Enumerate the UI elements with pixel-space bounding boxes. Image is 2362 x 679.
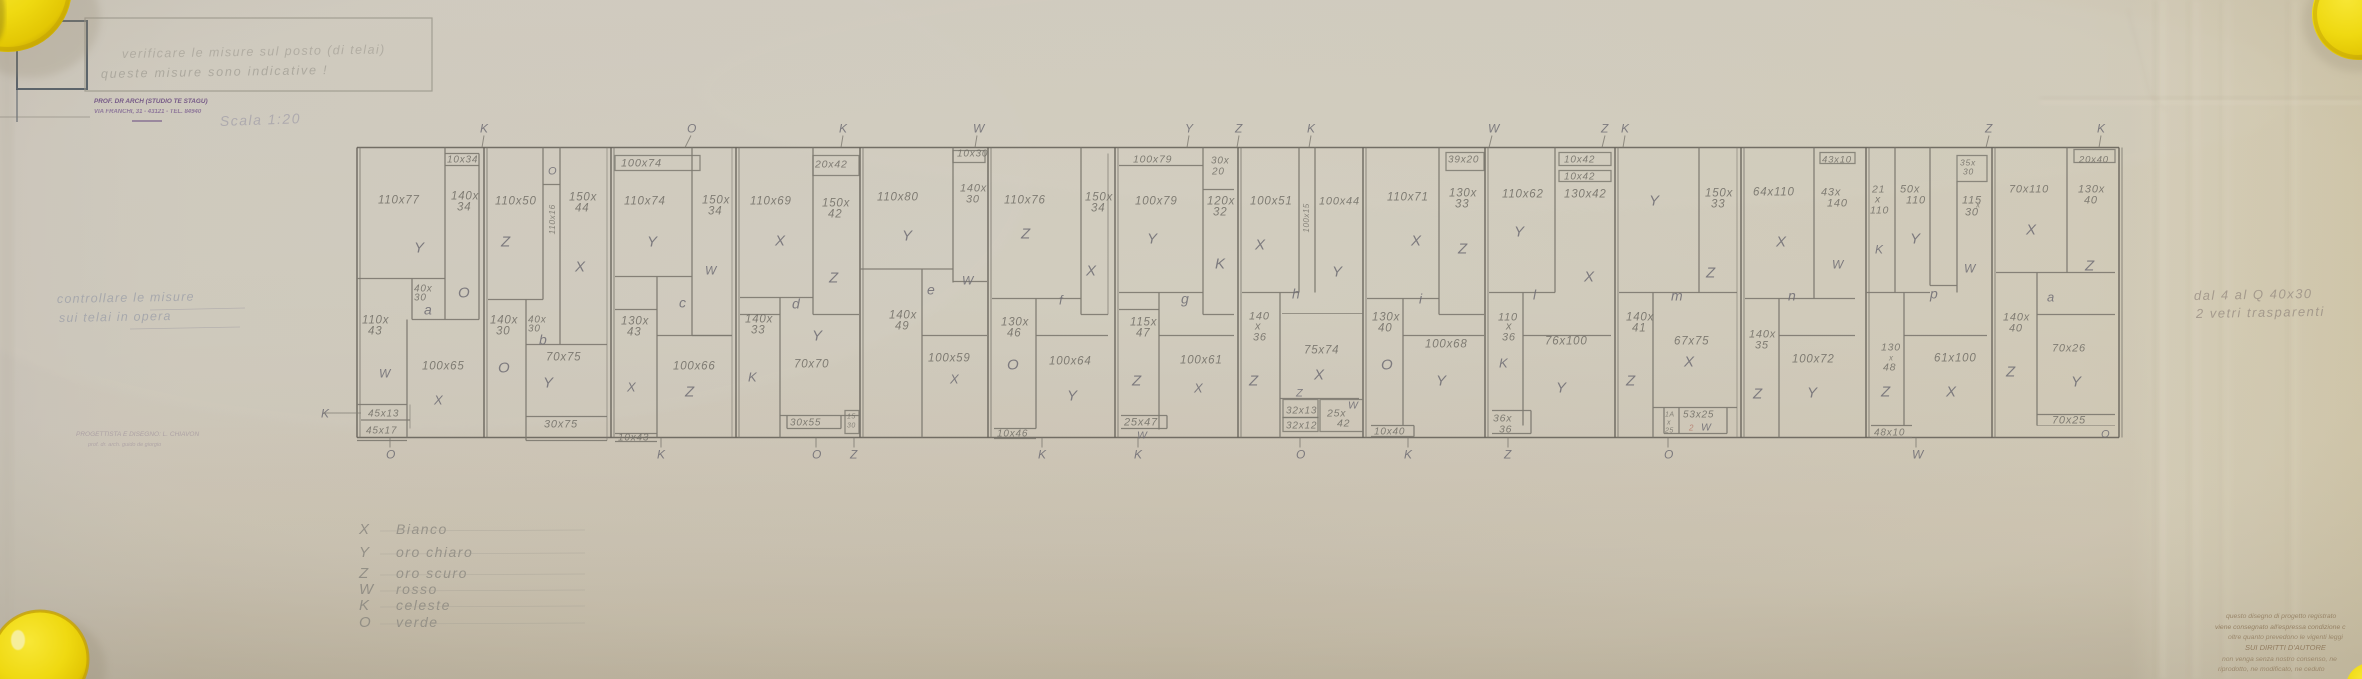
svg-text:K: K [657,448,666,462]
svg-text:W: W [705,264,718,278]
svg-text:O: O [812,448,822,462]
svg-text:O: O [458,285,470,302]
svg-text:70x75: 70x75 [546,352,581,364]
svg-text:Z: Z [1705,265,1716,282]
svg-text:34: 34 [457,202,471,214]
svg-text:p: p [1929,286,1938,302]
svg-text:Y: Y [1556,380,1567,397]
svg-text:X: X [2025,222,2037,239]
svg-text:32x12: 32x12 [1286,421,1317,432]
svg-text:K: K [1875,243,1884,257]
svg-text:Y: Y [1067,388,1078,405]
svg-text:Z: Z [1457,241,1468,258]
svg-text:46: 46 [1007,328,1021,340]
svg-text:Z: Z [2005,364,2016,381]
svg-text:Y: Y [1649,193,1660,210]
svg-text:oltre quanto prevedono le vige: oltre quanto prevedono le vigenti leggi [2228,634,2343,641]
svg-text:100x79: 100x79 [1133,154,1172,166]
svg-text:Y: Y [902,228,913,245]
svg-text:130x42: 130x42 [1564,189,1607,201]
svg-text:rosso: rosso [396,581,438,597]
svg-text:40: 40 [1378,323,1392,335]
svg-text:W: W [1137,430,1148,442]
svg-text:Y: Y [647,234,658,251]
svg-text:39x20: 39x20 [1448,155,1479,166]
svg-text:47: 47 [1136,328,1150,340]
svg-text:34: 34 [708,206,722,218]
svg-text:Y: Y [1514,224,1525,241]
svg-text:X: X [1945,384,1957,401]
svg-text:K: K [748,370,758,385]
svg-text:O: O [548,166,557,178]
svg-text:riprodotto, ne modificato, ne: riprodotto, ne modificato, ne ceduto [2218,666,2325,673]
svg-text:W: W [379,367,392,381]
svg-text:Y: Y [2071,374,2082,391]
svg-text:Z: Z [1020,226,1031,243]
svg-text:20x40: 20x40 [2078,155,2109,166]
svg-text:X: X [1583,269,1595,286]
svg-text:10x34: 10x34 [447,155,478,166]
svg-text:Z: Z [1295,388,1304,400]
svg-text:32: 32 [1213,207,1227,219]
svg-text:100x66: 100x66 [673,361,716,373]
svg-text:Scala 1:20: Scala 1:20 [220,110,302,129]
svg-text:45x17: 45x17 [366,426,397,437]
svg-text:10x42: 10x42 [1564,155,1595,166]
svg-text:53x25: 53x25 [1683,410,1714,421]
svg-text:100x74: 100x74 [621,158,662,170]
svg-text:Z: Z [500,234,511,251]
svg-text:oro scuro: oro scuro [396,565,468,581]
svg-text:Z: Z [684,384,695,401]
svg-text:43x10: 43x10 [1822,155,1852,166]
svg-text:Z: Z [1503,448,1512,462]
svg-text:30: 30 [847,423,856,430]
svg-text:25: 25 [1664,428,1674,435]
svg-text:110x77: 110x77 [378,195,420,207]
svg-text:49: 49 [895,321,909,333]
svg-text:40: 40 [2009,323,2023,335]
svg-text:W: W [973,122,986,136]
svg-text:Z: Z [1984,122,1993,136]
svg-text:70x110: 70x110 [2009,184,2049,196]
svg-text:K: K [1134,448,1143,462]
svg-text:b: b [539,332,547,348]
svg-text:100x64: 100x64 [1049,356,1092,368]
svg-text:PROGETTISTA E DISEGNO: L. CHIA: PROGETTISTA E DISEGNO: L. CHIAVON [76,431,199,438]
svg-text:30: 30 [966,194,980,206]
svg-text:110x69: 110x69 [750,196,792,208]
svg-text:e: e [927,282,935,298]
svg-text:X: X [358,521,370,538]
svg-text:110x50: 110x50 [495,196,537,208]
svg-text:1A: 1A [1665,412,1675,419]
svg-text:non venga senza nostro consens: non venga senza nostro consenso, ne [2222,656,2337,663]
svg-text:Z: Z [1880,384,1891,401]
svg-text:140: 140 [1827,198,1848,210]
svg-text:a: a [424,302,432,318]
svg-text:43: 43 [627,327,641,339]
svg-text:prof. dr. arch. guido de giorg: prof. dr. arch. guido de giorgio [87,442,161,448]
svg-text:44: 44 [575,203,589,215]
svg-text:2: 2 [1688,424,1694,433]
svg-text:70x25: 70x25 [2052,415,2086,427]
svg-text:30x55: 30x55 [790,418,821,429]
svg-text:celeste: celeste [396,597,451,613]
svg-text:Y: Y [414,240,425,257]
svg-text:100x59: 100x59 [928,353,971,365]
svg-text:Z: Z [1131,373,1142,390]
svg-text:X: X [433,393,444,408]
svg-text:O: O [1007,357,1019,374]
svg-text:PROF. DR ARCH (STUDIO TE STAGU: PROF. DR ARCH (STUDIO TE STAGU) [94,98,208,105]
svg-text:2 vetri trasparenti: 2 vetri trasparenti [2195,304,2325,321]
svg-text:a: a [2047,290,2055,305]
svg-text:61x100: 61x100 [1934,353,1977,365]
svg-text:X: X [1313,367,1325,384]
svg-text:K: K [839,122,848,136]
svg-text:X: X [1193,381,1204,396]
svg-text:110x76: 110x76 [1004,195,1046,207]
svg-text:W: W [962,274,975,288]
svg-text:Bianco: Bianco [396,521,448,537]
svg-text:O: O [1296,448,1306,462]
svg-text:viene consegnato all'espressa: viene consegnato all'espressa condizione… [2215,624,2346,631]
svg-text:10x46: 10x46 [997,429,1028,440]
svg-text:36: 36 [1502,332,1516,344]
svg-text:W: W [1701,422,1712,434]
svg-text:41: 41 [1632,323,1646,335]
svg-text:110x74: 110x74 [624,196,666,208]
svg-text:45x13: 45x13 [368,409,399,420]
svg-text:35: 35 [1755,340,1769,352]
svg-text:Y: Y [1910,231,1921,248]
svg-text:K: K [1621,122,1630,136]
svg-text:76x100: 76x100 [1545,336,1588,348]
svg-text:10x40: 10x40 [1374,427,1405,438]
svg-text:h: h [1292,286,1300,302]
svg-text:100x15: 100x15 [1302,203,1311,232]
svg-text:30: 30 [1965,207,1979,219]
svg-text:33: 33 [1711,199,1725,211]
svg-text:sui telai in opera: sui telai in opera [59,309,172,325]
svg-text:42: 42 [1337,418,1350,430]
svg-text:W: W [1912,448,1925,462]
svg-text:d: d [792,296,801,312]
svg-text:K: K [1038,448,1047,462]
svg-text:Z: Z [849,448,858,462]
svg-text:34: 34 [1091,203,1105,215]
svg-text:g: g [1181,291,1189,307]
svg-text:Y: Y [1807,385,1818,402]
svg-text:Z: Z [828,270,839,287]
svg-text:VIA FRANCHI, 31 - 43121 - TEL.: VIA FRANCHI, 31 - 43121 - TEL. 84940 [94,109,202,115]
svg-text:O: O [2101,429,2110,441]
svg-text:K: K [1404,448,1413,462]
svg-text:75x74: 75x74 [1304,345,1339,357]
svg-text:Z: Z [1234,122,1243,136]
svg-text:O: O [359,614,371,631]
svg-text:controllare le misure: controllare le misure [57,290,195,306]
svg-text:36: 36 [1499,424,1512,436]
svg-text:O: O [386,448,396,462]
svg-text:110x62: 110x62 [1502,189,1544,201]
svg-text:110x16: 110x16 [547,204,557,234]
svg-text:K: K [359,597,370,614]
svg-text:verde: verde [396,614,439,630]
svg-text:questo disegno di progetto re: questo disegno di progetto registrato [2226,613,2337,620]
svg-text:X: X [1085,263,1097,280]
svg-text:30: 30 [1963,167,1974,177]
svg-text:O: O [498,360,510,377]
svg-text:X: X [949,372,960,387]
svg-text:48: 48 [1883,362,1896,374]
svg-text:32x13: 32x13 [1286,406,1317,417]
svg-text:20x42: 20x42 [814,159,848,171]
svg-text:33: 33 [1455,199,1469,211]
svg-text:W: W [1348,400,1359,412]
svg-text:100x79: 100x79 [1135,196,1178,208]
svg-text:Z: Z [2084,258,2095,275]
svg-text:Y: Y [1332,264,1343,281]
svg-text:110: 110 [1870,205,1889,217]
svg-text:40: 40 [2084,195,2098,207]
svg-text:33: 33 [751,325,765,337]
svg-text:oro chiaro: oro chiaro [396,544,473,560]
svg-text:O: O [687,122,697,136]
svg-text:K: K [2097,122,2106,136]
svg-text:42: 42 [828,209,842,221]
svg-text:36: 36 [1253,332,1267,344]
svg-text:70x26: 70x26 [2052,343,2086,355]
svg-text:100x51: 100x51 [1250,196,1293,208]
svg-text:30x: 30x [1211,156,1230,167]
svg-text:Y: Y [543,375,554,392]
svg-text:25x47: 25x47 [1123,417,1158,429]
svg-text:130: 130 [1881,342,1901,354]
svg-text:W: W [1488,122,1501,136]
svg-text:Z: Z [1625,373,1636,390]
svg-text:10x43: 10x43 [618,433,649,444]
svg-text:O: O [1664,448,1674,462]
svg-text:W: W [1964,262,1977,276]
svg-text:Z: Z [1600,122,1609,136]
svg-text:W: W [1832,258,1845,272]
svg-text:30: 30 [496,326,510,338]
svg-text:Z: Z [1248,373,1259,390]
svg-text:dal 4 al Q 40x30: dal 4 al Q 40x30 [2194,286,2313,303]
svg-text:110: 110 [1906,195,1926,207]
svg-text:30x75: 30x75 [544,419,578,431]
svg-text:K: K [1499,356,1509,371]
svg-text:X: X [1683,354,1695,371]
svg-text:Y: Y [359,544,370,561]
svg-text:100x44: 100x44 [1319,196,1360,208]
svg-text:10x30: 10x30 [957,149,988,160]
svg-text:100x68: 100x68 [1425,339,1468,351]
svg-text:l: l [1533,287,1537,303]
svg-text:Y: Y [1436,373,1447,390]
svg-text:SUI DIRITTI D'AUTORE: SUI DIRITTI D'AUTORE [2245,643,2327,652]
svg-text:100x65: 100x65 [422,361,465,373]
svg-text:Y: Y [1185,122,1194,136]
svg-text:O: O [1381,357,1393,374]
svg-text:43: 43 [368,326,382,338]
svg-text:x: x [1666,420,1671,427]
svg-text:20: 20 [1211,167,1225,178]
svg-text:70x70: 70x70 [794,359,829,371]
svg-text:X: X [1775,234,1787,251]
svg-text:48x10: 48x10 [1874,428,1905,439]
svg-text:K: K [1307,122,1316,136]
svg-text:Y: Y [812,328,823,345]
svg-text:10x42: 10x42 [1564,172,1595,183]
svg-text:110x80: 110x80 [877,192,919,204]
svg-text:n: n [1788,288,1796,304]
svg-text:X: X [574,259,586,276]
svg-text:K: K [480,122,489,136]
svg-text:c: c [679,295,686,311]
svg-text:Y: Y [1147,231,1158,248]
svg-text:Z: Z [358,565,369,582]
svg-text:64x110: 64x110 [1753,187,1795,199]
svg-text:X: X [774,233,786,250]
svg-text:X: X [626,380,637,395]
svg-text:Z: Z [1752,386,1763,403]
svg-text:X: X [1254,237,1266,254]
svg-text:m: m [1671,288,1683,304]
svg-text:110x71: 110x71 [1387,192,1429,204]
svg-text:100x72: 100x72 [1792,354,1835,366]
svg-text:X: X [1410,233,1422,250]
svg-text:W: W [359,581,375,598]
svg-text:15: 15 [847,414,856,421]
svg-text:100x61: 100x61 [1180,355,1223,367]
svg-text:67x75: 67x75 [1674,336,1709,348]
svg-text:K: K [1215,256,1226,273]
